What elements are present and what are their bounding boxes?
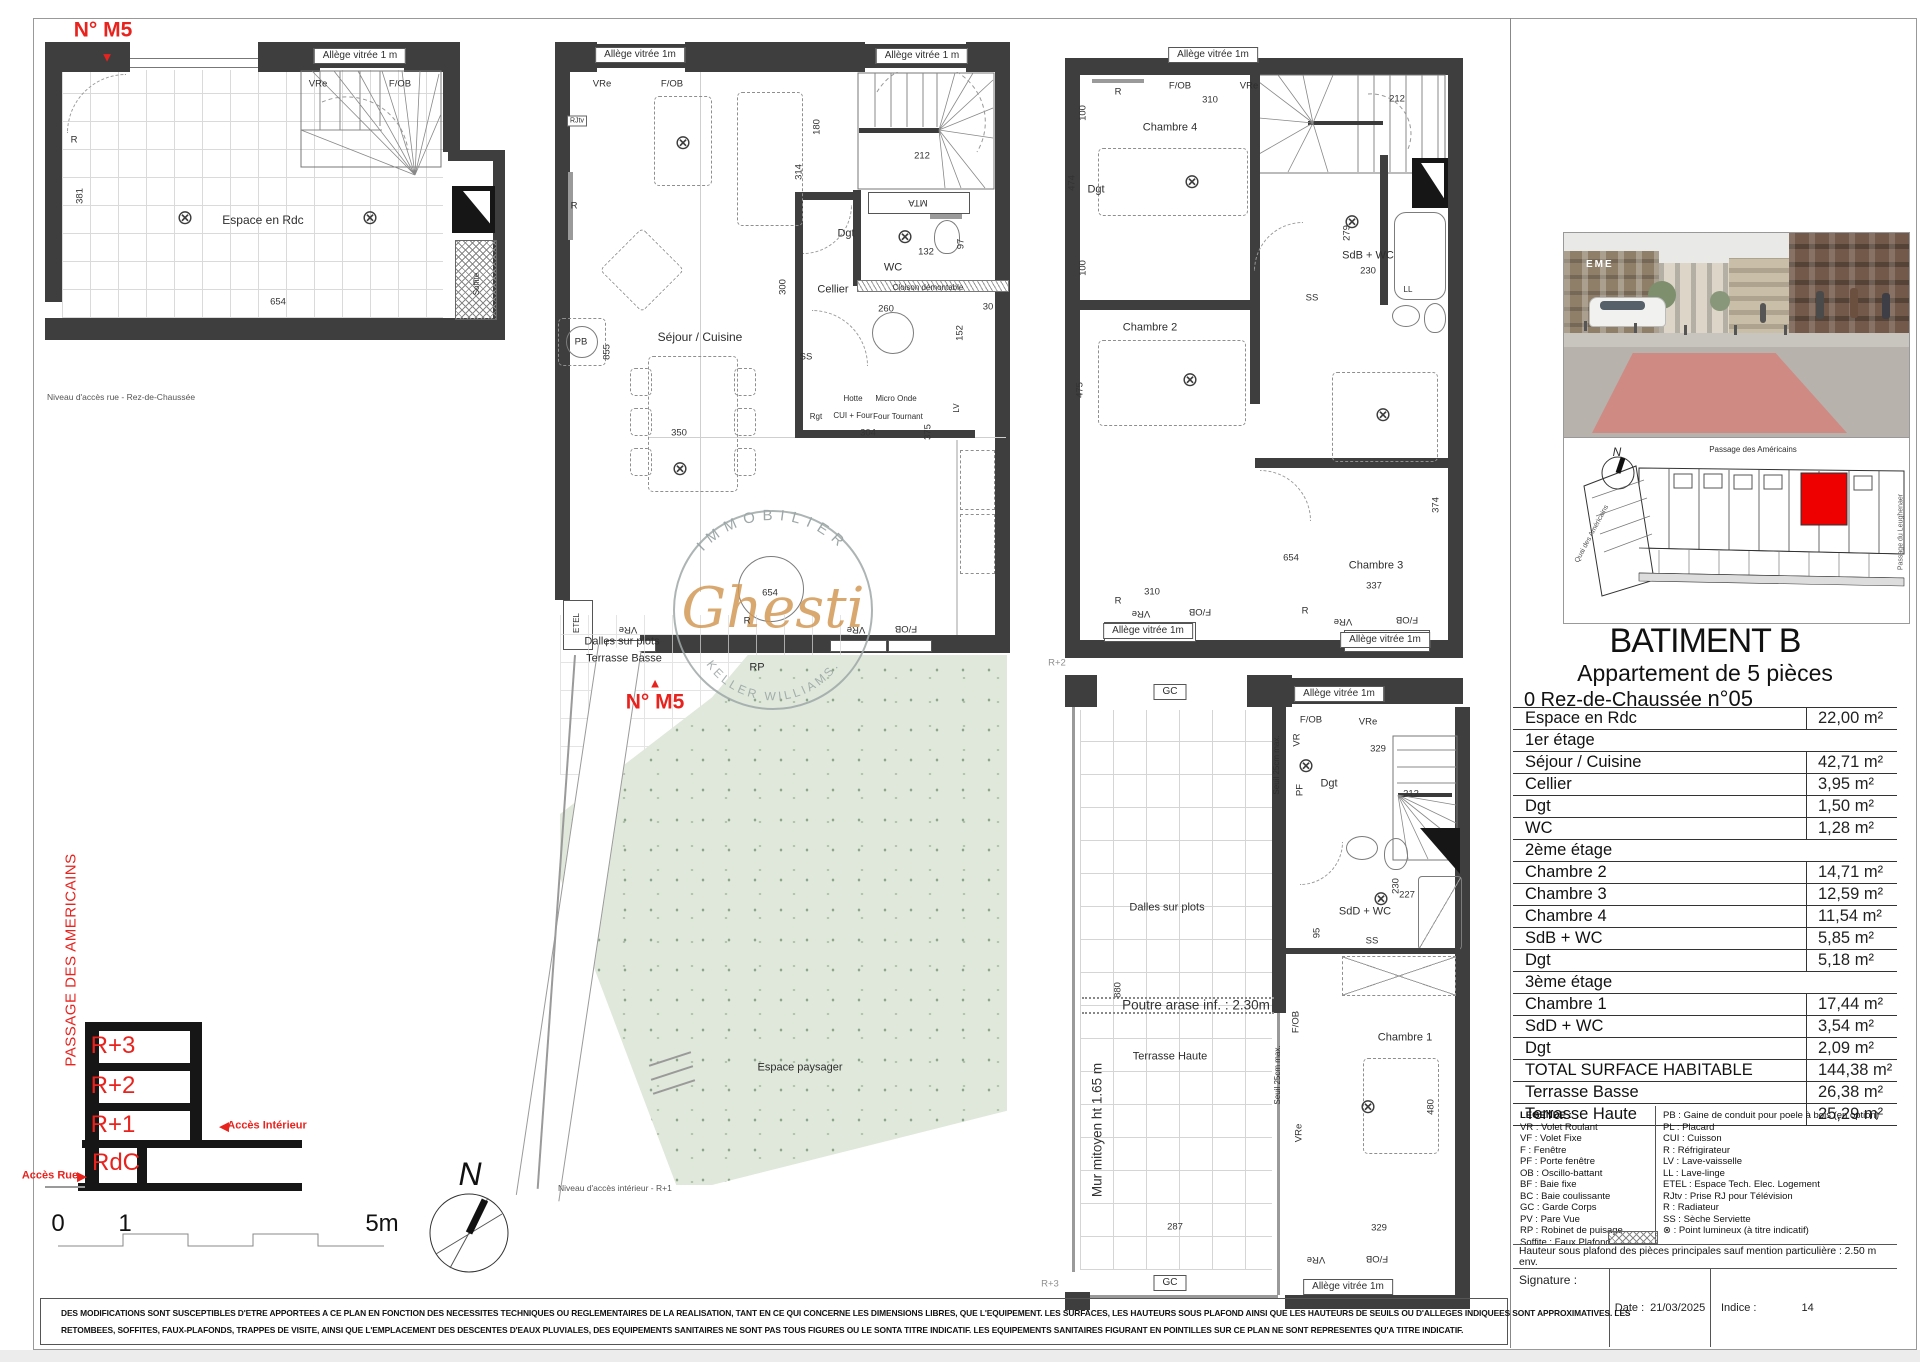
disclaimer-line: RETOMBEES, SOFFITES, FAUX-PLAFONDS, TRAP… [61,1322,1507,1339]
ceiling-height-note: Hauteur sous plafond des pièces principa… [1513,1244,1897,1268]
area-row: Dgt5,18 m² [1513,950,1897,972]
toilet-outline [1384,838,1408,870]
furniture-outline [734,448,756,476]
area-row: Séjour / Cuisine42,71 m² [1513,752,1897,774]
photo-tree [1710,291,1730,311]
floor-section-row: 2ème étage [1513,840,1897,862]
wall-segment [82,1140,302,1148]
scale-bar [56,1230,391,1248]
area-row: Chambre 312,59 m² [1513,884,1897,906]
bed-outline [1332,372,1438,462]
north-compass-icon [428,1192,510,1274]
hatch-area [857,280,1009,292]
legend-left-column: LEGENDE :VR : Volet Roulant VF : Volet F… [1513,1106,1655,1244]
wall-segment [78,1183,302,1191]
drawing-shape [1639,468,1904,554]
wall-segment [1065,58,1463,75]
furniture-outline [630,448,652,476]
area-row: Dgt1,50 m² [1513,796,1897,818]
plan-line [130,58,258,68]
furniture-outline [734,408,756,436]
area-row-value: 2,09 m² [1806,1038,1897,1059]
furniture-outline [960,514,995,574]
drawing-shape: IMMOBILIER [694,507,853,555]
sofa-outline [737,92,803,226]
area-row: WC1,28 m² [1513,818,1897,840]
furniture-outline [734,368,756,396]
photo-bollard [1584,321,1587,331]
photo-bollard [1684,325,1687,335]
photo-car [1589,297,1666,327]
title-column-divider [1510,18,1511,1348]
legend-left-items: VR : Volet Roulant VF : Volet Fixe F : F… [1520,1122,1655,1249]
area-row-label: Chambre 3 [1513,885,1806,904]
area-row: Chambre 117,44 m² [1513,994,1897,1016]
plan-line [1082,997,1274,1001]
photo-signage: EME [1586,259,1614,270]
wall-segment [795,192,861,200]
wall-segment [1380,155,1388,305]
floor-section-row: 1er étage [1513,730,1897,752]
drawing-shape [859,128,939,133]
dining-table-outline [648,356,738,492]
shower-outline [1418,876,1462,950]
area-row-value: 26,38 m² [1806,1082,1897,1103]
drawing-shape [301,71,441,175]
plan-line [45,1186,85,1188]
window-box [1344,630,1430,652]
photo-bollard [1734,325,1737,335]
area-row: Chambre 411,54 m² [1513,906,1897,928]
area-row-label: Espace en Rdc [1513,709,1806,728]
area-row-label: Séjour / Cuisine [1513,753,1806,772]
wall-segment [1065,58,1080,658]
photo-bollard [1784,325,1787,335]
photo-person [1760,303,1766,323]
area-row-value: 1,50 m² [1806,796,1897,817]
plan-line [1092,79,1144,83]
furniture-outline [630,368,652,396]
wall-segment [45,47,62,302]
floor-section-row: 3ème étage [1513,972,1897,994]
drawing-shape [322,97,408,150]
area-row-value: 22,00 m² [1806,708,1897,729]
area-row-value: 3,95 m² [1806,774,1897,795]
plan-line [1277,1013,1280,1295]
drawing-shape [875,73,937,127]
wall-segment [1065,675,1097,707]
date-value: 21/03/2025 [1650,1302,1705,1314]
photo-bollard [1634,323,1637,333]
floor-plan-sheet: IMMOBILIER Ghesti KELLER WILLIAMS. EME [0,0,1920,1362]
sink-outline [1346,836,1378,860]
area-row-label: SdB + WC [1513,929,1806,948]
area-row-label: WC [1513,819,1806,838]
area-row-label: 2ème étage [1513,841,1897,860]
legend-box: LEGENDE :VR : Volet Roulant VF : Volet F… [1513,1106,1897,1244]
watermark-script: Ghesti [681,576,864,641]
area-row: Espace en Rdc22,00 m² [1513,708,1897,730]
window-box [1104,622,1196,642]
soffite-swatch [1608,1231,1658,1244]
wall-segment [443,47,460,152]
indice-cell: Indice : 14 [1710,1269,1897,1347]
site-location-inset [1563,437,1910,624]
photo-person [1850,288,1858,318]
wall-segment [1285,948,1460,954]
area-row-label: Chambre 1 [1513,995,1806,1014]
coffee-table-outline [654,96,712,186]
wall-segment [452,186,495,233]
area-row-label: 3ème étage [1513,973,1897,992]
stair-linework [300,70,442,192]
area-row: Terrasse Basse26,38 m² [1513,1082,1897,1104]
window-box [868,192,970,214]
sink-outline [1392,305,1420,327]
selected-unit-highlight [1801,473,1847,525]
wall-segment [1448,58,1463,658]
plan-line [956,440,958,635]
building-title: BATIMENT B [1513,622,1897,661]
plan-line [1082,1012,1274,1016]
wall-segment [258,42,320,72]
wall-segment [1272,707,1286,1013]
wardrobe-outline [1342,956,1456,996]
washing-machine-outline [872,312,914,354]
render-photo: EME [1563,232,1910,439]
inset-north-compass-icon [1600,455,1636,491]
wall-segment [85,1063,202,1071]
area-row-value: 144,38 m² [1806,1060,1897,1081]
apartment-type: Appartement de 5 pièces [1513,660,1897,687]
drawing-shape [1618,458,1623,473]
wall-segment [685,42,865,72]
wall-segment [860,44,970,68]
area-table: Espace en Rdc22,00 m²1er étageSéjour / C… [1513,707,1897,1126]
wall-segment [1412,158,1448,208]
area-row: Chambre 214,71 m² [1513,862,1897,884]
bathtub-outline [1394,212,1446,300]
watermark-arc-top: IMMOBILIER [694,507,853,555]
plan-line [930,214,962,219]
area-row-label: Chambre 2 [1513,863,1806,882]
area-row: Cellier3,95 m² [1513,774,1897,796]
wall-segment [593,44,689,68]
wall-segment [137,1143,147,1188]
area-row-value: 1,28 m² [1806,818,1897,839]
wall-segment [85,1103,202,1111]
area-row-value: 11,54 m² [1806,906,1897,927]
drawing-shape [58,1234,384,1246]
wall-segment [85,1022,202,1031]
drawing-shape [877,72,985,152]
agency-watermark: IMMOBILIER Ghesti KELLER WILLIAMS. [648,485,898,735]
corner-wedge [457,191,490,228]
area-row-label: Dgt [1513,797,1806,816]
area-row-value: 42,71 m² [1806,752,1897,773]
photo-person [1882,293,1890,319]
corner-wedge [1416,163,1444,203]
page-bottom-margin [0,1350,1920,1362]
wall-segment [318,42,408,68]
plan-line [568,172,573,240]
photo-person [1816,291,1824,319]
toilet-outline [1424,303,1446,333]
drawing-shape [1308,121,1383,125]
fixture-outline [566,326,598,358]
area-row: Dgt2,09 m² [1513,1038,1897,1060]
photo-building-mid2 [1729,258,1789,343]
area-row: SdB + WC5,85 m² [1513,928,1897,950]
legend-right-column: PB : Gaine de conduit pour poele à bois … [1655,1106,1897,1244]
floor-tile-grid [1080,710,1272,1270]
toilet-outline [934,220,960,254]
area-row-value: 17,44 m² [1806,994,1897,1015]
area-row-value: 3,54 m² [1806,1016,1897,1037]
drawing-shape [1419,877,1461,949]
drawing-shape [939,73,993,188]
wall-segment [853,190,861,286]
stair-linework [857,72,995,190]
bed-outline [1098,148,1248,216]
area-row-label: Terrasse Basse [1513,1083,1806,1102]
area-row-label: Cellier [1513,775,1806,794]
plan-line [1072,707,1075,1272]
area-row-value: 14,71 m² [1806,862,1897,883]
area-row-value: 5,85 m² [1806,928,1897,949]
wall-segment [45,318,505,340]
furniture-outline [960,450,995,510]
furniture-outline [630,408,652,436]
disclaimer-box: DES MODIFICATIONS SONT SUSCEPTIBLES D'ET… [40,1298,1508,1345]
area-row-label: 1er étage [1513,731,1897,750]
drawing-shape [1397,750,1456,783]
indice-value: 14 [1801,1302,1813,1314]
wall-segment [995,60,1010,653]
area-row: SdD + WC3,54 m² [1513,1016,1897,1038]
area-row-value: 12,59 m² [1806,884,1897,905]
wall-segment [190,1022,202,1143]
area-row: TOTAL SURFACE HABITABLE144,38 m² [1513,1060,1897,1082]
legend-title: LEGENDE : [1520,1110,1572,1121]
area-row-label: Dgt [1513,1039,1806,1058]
hatch-area [455,240,497,320]
wall-segment [1080,300,1252,310]
wall-segment [1285,678,1463,704]
indice-label: Indice : [1721,1302,1756,1314]
photo-building-right [1789,233,1909,339]
area-row-value: 5,18 m² [1806,950,1897,971]
drawing-shape [1564,333,1909,347]
area-row-label: SdD + WC [1513,1017,1806,1036]
area-row-label: Dgt [1513,951,1806,970]
area-row-label: Chambre 4 [1513,907,1806,926]
bed-outline [1363,1058,1439,1154]
wall-segment [1250,74,1260,404]
bed-outline [1098,340,1246,426]
wall-segment [795,430,975,438]
wall-segment [795,296,803,436]
drawing-shape [469,1200,485,1233]
drawing-shape [1600,301,1645,310]
drawing-shape [1639,573,1904,586]
area-row-label: TOTAL SURFACE HABITABLE [1513,1061,1806,1080]
disclaimer-line: DES MODIFICATIONS SONT SUSCEPTIBLES D'ET… [61,1305,1507,1322]
